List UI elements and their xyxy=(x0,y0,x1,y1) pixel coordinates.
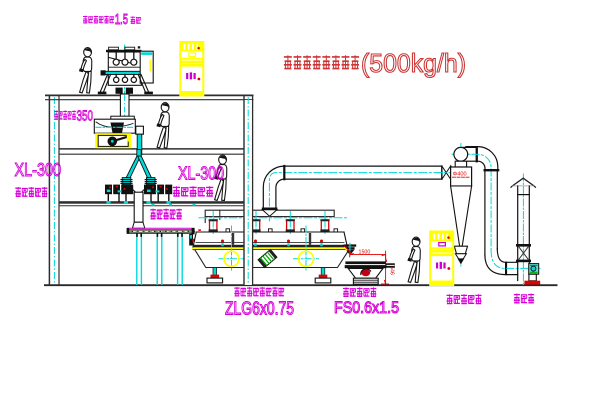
svg-text:1.5: 1.5 xyxy=(115,11,128,28)
svg-text:ZLG6x0.75: ZLG6x0.75 xyxy=(225,299,294,319)
svg-text:350: 350 xyxy=(77,108,94,125)
svg-text:XL-300: XL-300 xyxy=(15,160,62,180)
svg-text:1500: 1500 xyxy=(359,250,371,256)
svg-text:FS0.6x1.5: FS0.6x1.5 xyxy=(334,298,399,317)
svg-text:XL-300: XL-300 xyxy=(178,164,224,184)
svg-text:(500kg/h): (500kg/h) xyxy=(361,48,466,78)
svg-text:Φ400: Φ400 xyxy=(453,172,467,178)
